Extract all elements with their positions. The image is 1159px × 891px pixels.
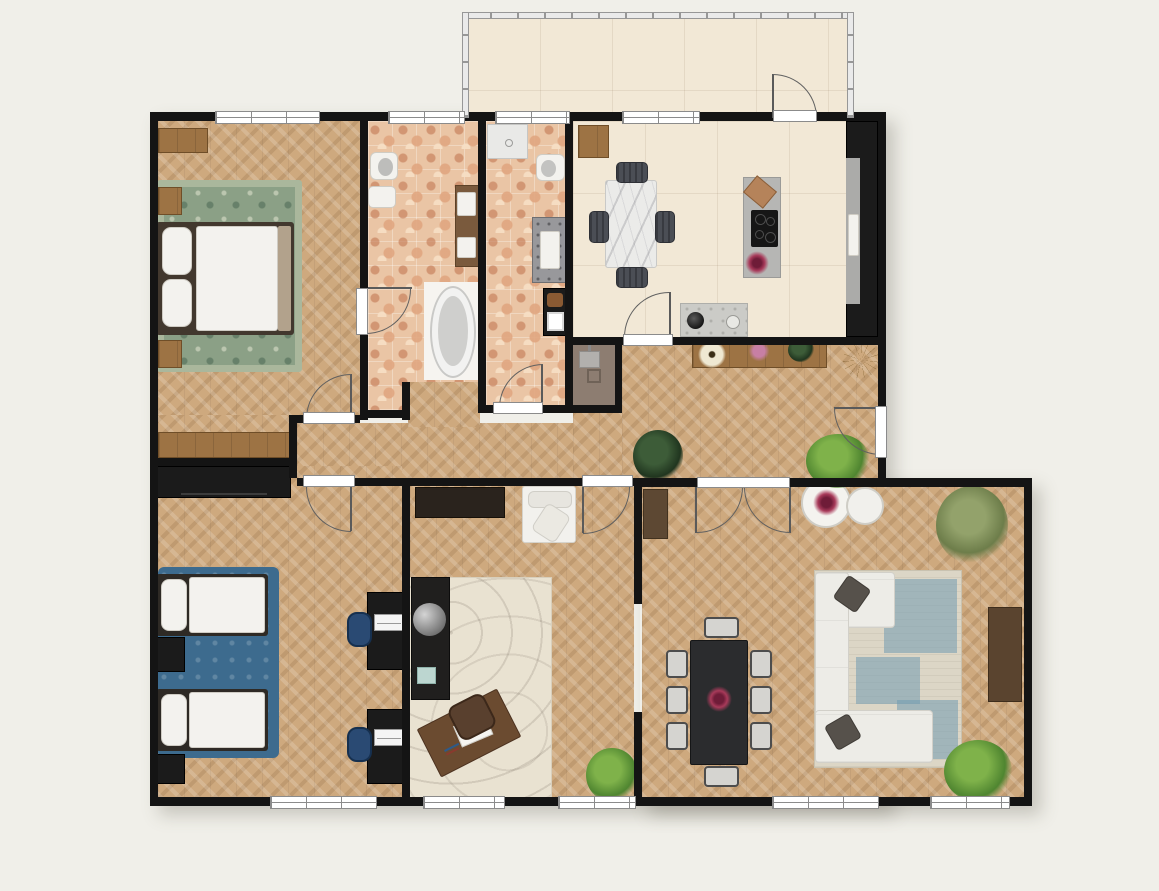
office-armchair[interactable]: [522, 486, 576, 543]
door-twin-bedroom[interactable]: [303, 475, 355, 487]
living-corner-cabinet[interactable]: [643, 489, 668, 539]
office-globe[interactable]: [413, 603, 446, 636]
bed-duvet: [196, 226, 278, 331]
wall-shower-kitchen: [565, 121, 573, 413]
wall-bed2-office: [402, 478, 410, 806]
toilet-bowl: [541, 160, 556, 177]
dining-chair-left-1[interactable]: [666, 650, 688, 678]
wall-office-living-lower: [634, 712, 642, 806]
bed-pillow: [162, 227, 192, 275]
master-double-bed[interactable]: [156, 222, 294, 335]
hall-plant-dark[interactable]: [633, 430, 683, 482]
twin-wardrobe[interactable]: [155, 466, 291, 498]
shower-drain: [505, 139, 513, 147]
living-plant-olive[interactable]: [936, 486, 1008, 564]
wall-living-top-a: [641, 478, 697, 487]
wardrobe-handle: [181, 493, 267, 495]
master-nightstand-top[interactable]: [158, 187, 182, 215]
nook-floor-frame: [587, 369, 601, 383]
bed-bench: [278, 226, 291, 331]
kitchen-cabinet[interactable]: [578, 125, 609, 158]
wall-bed1-ext-bottom: [150, 458, 297, 466]
door-balcony[interactable]: [773, 110, 817, 122]
wall-shower-bottom-left: [478, 405, 493, 413]
window-shower-room[interactable]: [495, 111, 570, 124]
dining-chair-right-2[interactable]: [750, 686, 772, 714]
nook-wall-lamp: [588, 345, 591, 352]
window-living-right[interactable]: [930, 796, 1010, 809]
counter-hob-knob: [726, 315, 740, 329]
window-office-left[interactable]: [423, 796, 505, 809]
toilet-bowl: [378, 158, 393, 176]
wall-office-top-a: [402, 478, 582, 486]
laptop-b[interactable]: [374, 729, 404, 746]
office-plant[interactable]: [586, 748, 638, 802]
window-living-left[interactable]: [772, 796, 879, 809]
door-ensuite-bathroom[interactable]: [356, 288, 368, 335]
dining-chair-right-1[interactable]: [750, 650, 772, 678]
door-shower-room[interactable]: [493, 402, 543, 414]
island-flower-bowl[interactable]: [745, 251, 769, 275]
twin-bed-a[interactable]: [156, 574, 268, 636]
bathroom-toilet[interactable]: [370, 152, 398, 180]
wall-stub-left: [402, 382, 410, 420]
door-kitchen-leaf: [669, 292, 671, 337]
dining-chair-head-top[interactable]: [704, 617, 739, 638]
rug-blue-patch: [856, 657, 920, 704]
wall-step-top: [886, 478, 1032, 487]
wall-bath-bottom: [360, 410, 408, 418]
wall-corridor-jog: [289, 415, 297, 478]
burner: [755, 230, 764, 239]
twin-nightstand-b[interactable]: [155, 754, 185, 784]
living-plant-bright[interactable]: [944, 740, 1012, 802]
twin-nightstand-a[interactable]: [155, 637, 185, 672]
dining-chair-north[interactable]: [616, 162, 648, 183]
dried-branches-decor[interactable]: [843, 342, 879, 378]
dining-chair-left-2[interactable]: [666, 686, 688, 714]
door-entry[interactable]: [875, 406, 887, 458]
kitchen-dining-table[interactable]: [605, 180, 657, 268]
wall-right-upper: [878, 112, 886, 408]
dining-chair-left-3[interactable]: [666, 722, 688, 750]
door-kitchen[interactable]: [623, 334, 673, 346]
side-table-flowers[interactable]: [813, 489, 840, 516]
bed-mattress: [189, 692, 265, 748]
door-office[interactable]: [582, 475, 633, 487]
wall-bed2-top-b: [355, 478, 408, 486]
room-hallway-floor-belownook[interactable]: [573, 405, 622, 478]
wall-nook-bottom: [565, 405, 622, 413]
dining-chair-right-3[interactable]: [750, 722, 772, 750]
bed-mattress: [189, 577, 265, 633]
stone-vanity-sink: [540, 231, 560, 269]
wall-bed1-bottom-b: [355, 415, 360, 423]
vanity-sink-2: [457, 237, 476, 258]
wall-bed1-bath-lower: [360, 335, 368, 420]
bathtub[interactable]: [430, 286, 476, 378]
door-living-double[interactable]: [697, 477, 790, 488]
room-hallway-floor-stub[interactable]: [408, 382, 480, 427]
towels: [547, 293, 563, 307]
wall-bed1-bath-upper: [360, 121, 368, 288]
shower-tray[interactable]: [487, 124, 528, 159]
bathroom-basin[interactable]: [368, 186, 396, 208]
dining-table-flowers[interactable]: [706, 686, 732, 712]
wall-kitchen-bottom-right: [673, 337, 878, 345]
wall-living-top-b: [790, 478, 886, 487]
balcony-railing-left[interactable]: [462, 12, 469, 118]
wall-nook-right: [615, 345, 622, 407]
armchair-seat-cushion: [531, 502, 572, 544]
bed-pillow: [161, 579, 187, 631]
burner: [765, 232, 776, 243]
media-console[interactable]: [988, 607, 1022, 702]
laptop-a[interactable]: [374, 614, 404, 631]
window-twin-bedroom[interactable]: [270, 796, 377, 809]
framed-item: [547, 312, 564, 331]
window-master-bedroom[interactable]: [215, 111, 320, 124]
bathtub-basin: [438, 296, 468, 366]
vanity-sink-1: [457, 192, 476, 216]
office-shelf[interactable]: [415, 487, 505, 518]
balcony-railing-top[interactable]: [462, 12, 854, 19]
master-dresser[interactable]: [158, 128, 208, 153]
master-sideboard[interactable]: [158, 432, 290, 458]
round-side-table-small[interactable]: [846, 487, 884, 525]
wall-right-lower: [1024, 478, 1032, 806]
balcony-railing-right[interactable]: [847, 12, 854, 118]
wall-shower-bottom-right: [543, 405, 573, 413]
dining-chair-south[interactable]: [616, 267, 648, 288]
nook-chair[interactable]: [579, 351, 600, 368]
wall-kitchen-bottom-left: [565, 337, 623, 345]
door-master-bedroom[interactable]: [303, 412, 355, 424]
master-nightstand-bottom[interactable]: [158, 340, 182, 368]
desk-chair-a[interactable]: [347, 612, 372, 647]
floor-plan: [0, 0, 1159, 891]
kitchen-faucet: [687, 312, 704, 329]
dining-chair-east[interactable]: [655, 211, 675, 243]
window-bathroom[interactable]: [388, 111, 465, 124]
console-white-flowers[interactable]: [698, 341, 726, 368]
kitchen-sink: [848, 214, 859, 256]
bed-pillow: [162, 279, 192, 327]
desk-chair-b[interactable]: [347, 727, 372, 762]
office-teal-tray: [417, 667, 436, 684]
window-kitchen[interactable]: [622, 111, 700, 124]
burner: [766, 217, 775, 226]
dining-chair-west[interactable]: [589, 211, 609, 243]
bed-pillow: [161, 694, 187, 746]
twin-bed-b[interactable]: [156, 689, 268, 751]
shower-room-toilet[interactable]: [536, 154, 565, 181]
wall-office-living-upper: [634, 478, 642, 604]
dining-chair-head-bottom[interactable]: [704, 766, 739, 787]
wall-bath-shower: [478, 121, 486, 413]
burner: [755, 214, 766, 225]
window-office-right[interactable]: [558, 796, 636, 809]
induction-cooktop[interactable]: [751, 210, 778, 247]
